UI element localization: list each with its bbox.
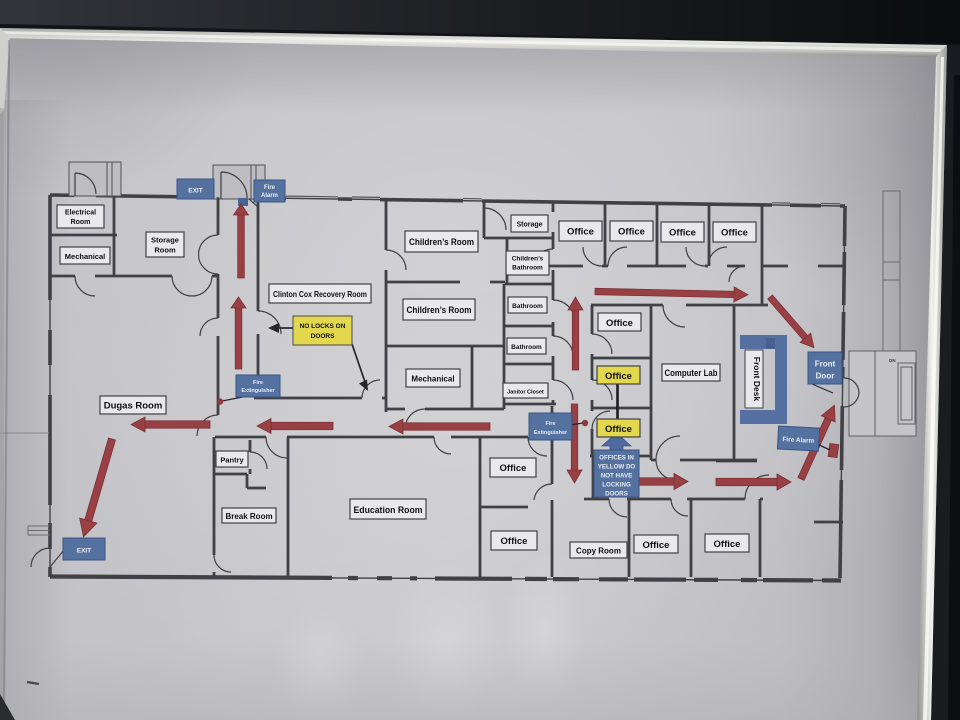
svg-text:Fire: Fire: [545, 421, 555, 427]
svg-text:Bathroom: Bathroom: [512, 303, 543, 310]
svg-text:YELLOW DO: YELLOW DO: [598, 464, 636, 471]
svg-text:Office: Office: [714, 539, 741, 550]
svg-text:Office: Office: [501, 536, 528, 547]
svg-text:NO LOCKS ON: NO LOCKS ON: [300, 323, 346, 330]
svg-text:Office: Office: [605, 371, 632, 382]
svg-text:Bathroom: Bathroom: [511, 344, 542, 351]
svg-text:Office: Office: [669, 228, 696, 239]
svg-text:Room: Room: [154, 246, 176, 255]
svg-text:EXIT: EXIT: [188, 188, 202, 195]
svg-text:DOORS: DOORS: [311, 333, 336, 340]
svg-text:Children’s: Children’s: [512, 256, 544, 263]
svg-text:DN: DN: [889, 358, 896, 363]
svg-text:Alarm: Alarm: [261, 193, 278, 199]
svg-text:Office: Office: [721, 228, 748, 239]
svg-text:Extinguisher: Extinguisher: [241, 388, 275, 394]
svg-text:Office: Office: [643, 540, 670, 551]
svg-text:Bathroom: Bathroom: [512, 265, 543, 272]
svg-text:Office: Office: [606, 318, 633, 329]
svg-text:NOT HAVE: NOT HAVE: [601, 473, 633, 480]
svg-text:Extinguisher: Extinguisher: [534, 430, 568, 436]
svg-text:Clinton Cox Recovery Room: Clinton Cox Recovery Room: [273, 289, 367, 299]
svg-text:Door: Door: [816, 372, 835, 381]
svg-text:Electrical: Electrical: [65, 210, 96, 217]
svg-text:Office: Office: [605, 424, 632, 435]
svg-text:Fire: Fire: [264, 185, 276, 191]
svg-text:Fire: Fire: [253, 380, 263, 386]
svg-text:Storage: Storage: [151, 236, 179, 245]
svg-text:Office: Office: [500, 463, 527, 474]
svg-text:Children’s Room: Children’s Room: [409, 237, 474, 248]
svg-text:Pantry: Pantry: [220, 456, 244, 465]
svg-text:Dugas Room: Dugas Room: [104, 401, 163, 412]
svg-text:Break Room: Break Room: [225, 512, 272, 521]
svg-text:LOCKING: LOCKING: [602, 482, 631, 489]
svg-text:Janitor Closet: Janitor Closet: [507, 390, 544, 396]
svg-text:Children’s Room: Children’s Room: [407, 305, 472, 316]
svg-text:Mechanical: Mechanical: [411, 375, 454, 384]
svg-text:Copy Room: Copy Room: [576, 547, 621, 556]
svg-text:EXIT: EXIT: [77, 548, 91, 555]
svg-text:Computer Lab: Computer Lab: [665, 368, 718, 378]
svg-text:Office: Office: [567, 227, 594, 238]
svg-text:Storage: Storage: [516, 222, 542, 229]
svg-text:DOORS: DOORS: [605, 491, 628, 498]
svg-text:Front: Front: [815, 360, 836, 369]
svg-text:Room: Room: [71, 219, 91, 226]
svg-text:OFFICES IN: OFFICES IN: [599, 455, 634, 462]
svg-text:Office: Office: [618, 227, 645, 238]
svg-text:Education Room: Education Room: [354, 505, 423, 516]
svg-text:Mechanical: Mechanical: [65, 252, 105, 261]
svg-text:Front Desk: Front Desk: [752, 357, 762, 402]
